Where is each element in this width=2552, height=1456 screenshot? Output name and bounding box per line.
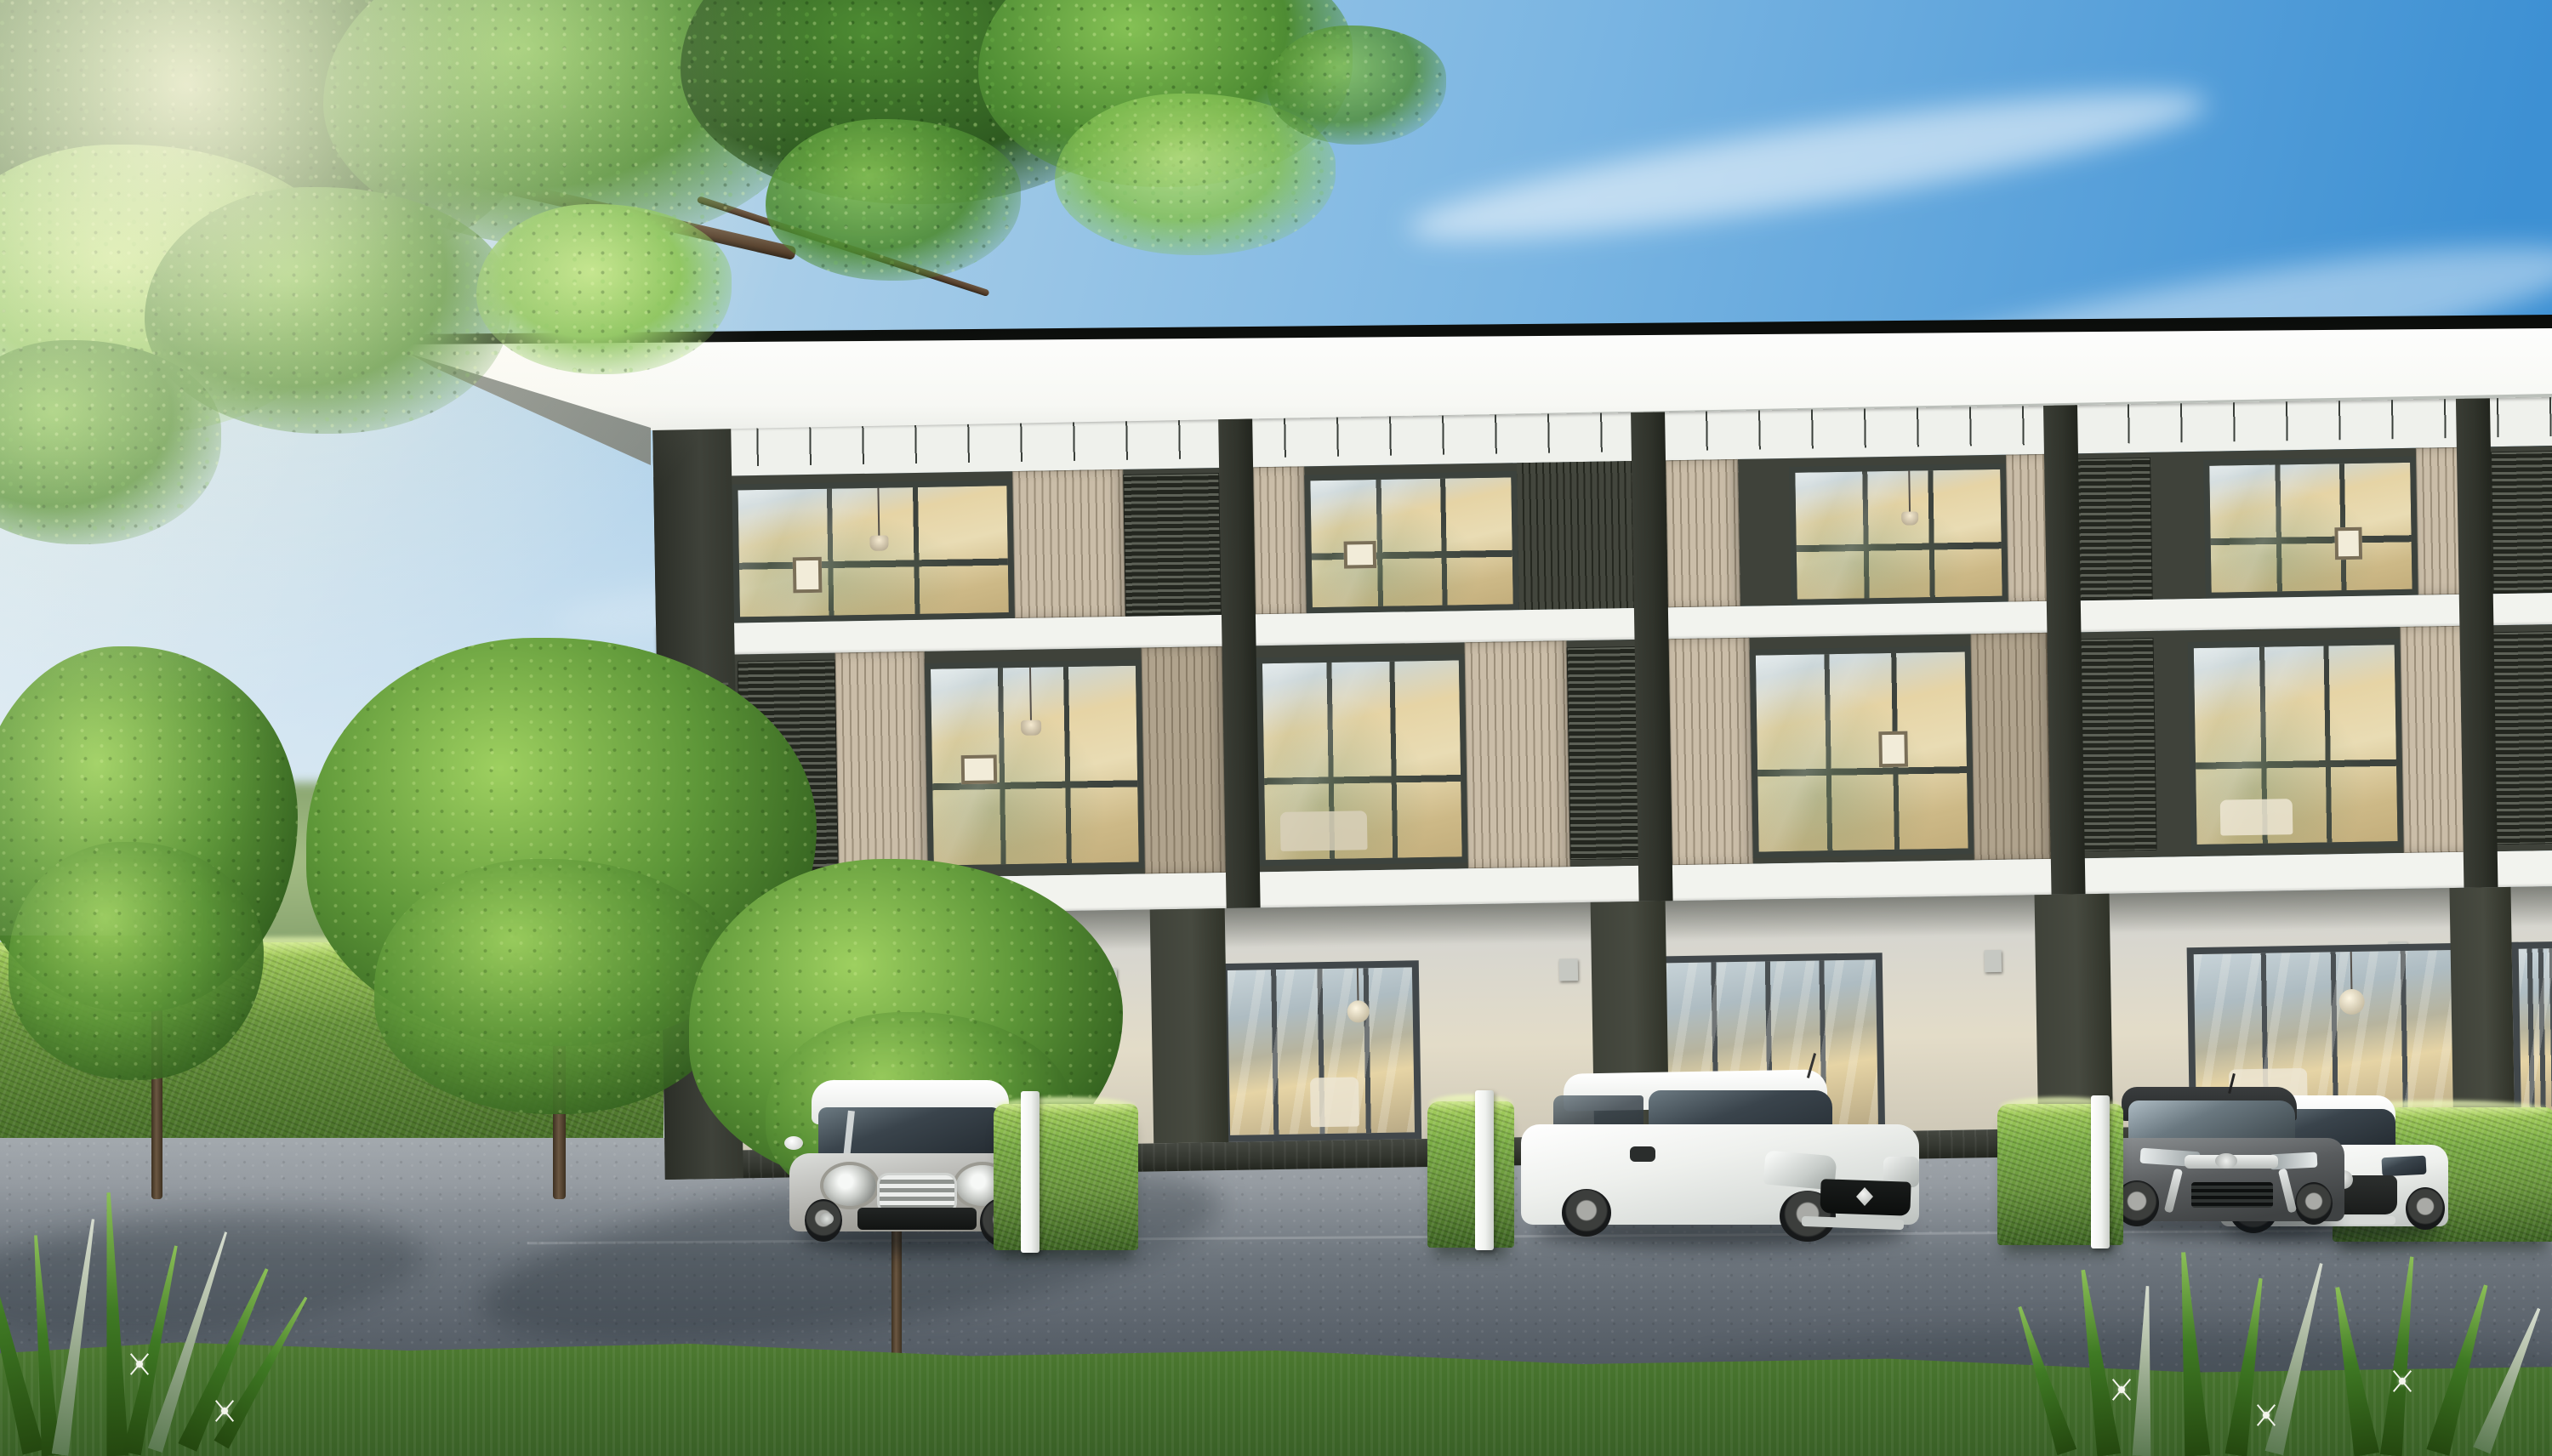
leaf-blade [52, 1218, 102, 1456]
car-toyota-dark [2103, 1087, 2344, 1237]
picture-frame [2335, 526, 2363, 560]
car-wheel [2406, 1187, 2445, 1230]
leaf-blade [2265, 1261, 2331, 1455]
parking-hedge [1427, 1101, 1514, 1248]
car-headlight-left [823, 1165, 876, 1206]
slat-screen [1142, 646, 1226, 874]
picture-frame [793, 557, 823, 594]
armchair-silhouette [1310, 1077, 1359, 1127]
wall-lamp [1985, 950, 2002, 972]
glass-slider-unit5 [2512, 941, 2552, 1121]
picture-frame [1343, 541, 1376, 569]
overhanging-canopy [0, 0, 1446, 544]
leaf-blade [98, 1192, 129, 1456]
pendant-cord [1357, 968, 1359, 1002]
window-floor2-unit4 [2188, 639, 2404, 850]
fog-light [820, 1213, 834, 1225]
hedge-post [1475, 1090, 1494, 1250]
leaf-blade [2225, 1277, 2272, 1456]
porch-recess [1150, 908, 1229, 1143]
pendant-lamp [1901, 511, 1918, 525]
white-spider-flower [221, 1408, 228, 1414]
leaf-blade [2473, 1305, 2548, 1453]
white-spider-flower [136, 1361, 143, 1368]
sofa-silhouette [1280, 810, 1367, 851]
leaf-cluster [1267, 26, 1446, 145]
picture-frame [1878, 731, 1908, 768]
white-spider-flower [2263, 1412, 2270, 1419]
car-mirror [784, 1136, 803, 1150]
pendant-lamp [1021, 720, 1041, 736]
tree-crown [374, 859, 740, 1114]
leaf-blade [2010, 1304, 2076, 1456]
glass-slider-unit2 [1221, 960, 1421, 1142]
foreground-plant-left [0, 1191, 332, 1456]
picture-frame [960, 754, 997, 784]
foreground-plant-right [2008, 1250, 2552, 1456]
car-chrome-grille [880, 1175, 954, 1211]
pendant-cord [1029, 668, 1032, 722]
window-floor2-unit2 [1256, 654, 1468, 866]
porch-recess [2035, 894, 2114, 1129]
leaf-blade [122, 1243, 185, 1455]
car-lower-intake [857, 1208, 977, 1230]
window-floor2-unit1 [925, 660, 1145, 872]
second-floor [657, 624, 2552, 882]
slat-screen [1970, 633, 2050, 860]
parking-hedge [994, 1104, 1138, 1250]
leaf-blade [2071, 1268, 2121, 1456]
leaf-blade [2380, 1255, 2423, 1456]
window-floor2-unit3 [1750, 646, 1974, 857]
lawn-tree [0, 646, 340, 1242]
pendant-cord [2350, 952, 2352, 991]
hedge-post [2091, 1095, 2110, 1248]
leaf-blade [2325, 1285, 2379, 1456]
car-wheel [2295, 1182, 2333, 1225]
leaf-cluster [476, 204, 732, 374]
slat-screen [1465, 640, 1570, 868]
car-suzuki-white [1521, 1072, 1919, 1245]
car-headlight-right [2381, 1156, 2426, 1177]
porch-recess [2449, 887, 2515, 1122]
car-wheel [1562, 1189, 1611, 1237]
wall-lamp [1559, 958, 1578, 981]
hedge-post [1021, 1091, 1040, 1253]
scene-townhouse-rendering [0, 0, 2552, 1456]
ball-pendant-lamp [2338, 989, 2364, 1015]
armchair-silhouette [2220, 799, 2293, 836]
car-mirror [1630, 1146, 1655, 1162]
ball-pendant-lamp [1347, 1000, 1369, 1022]
tree-crown [9, 842, 264, 1080]
leaf-blade [2133, 1286, 2157, 1456]
leaf-blade [2171, 1251, 2211, 1456]
leaf-cluster [766, 119, 1021, 281]
toyota-logo [2215, 1153, 2237, 1169]
slat-screen [1668, 638, 1752, 866]
car-lower-grille [2191, 1182, 2273, 1208]
slat-screen [835, 651, 928, 879]
leaf-blade [214, 1293, 313, 1448]
white-spider-flower [2399, 1378, 2406, 1385]
white-spider-flower [2118, 1386, 2125, 1393]
